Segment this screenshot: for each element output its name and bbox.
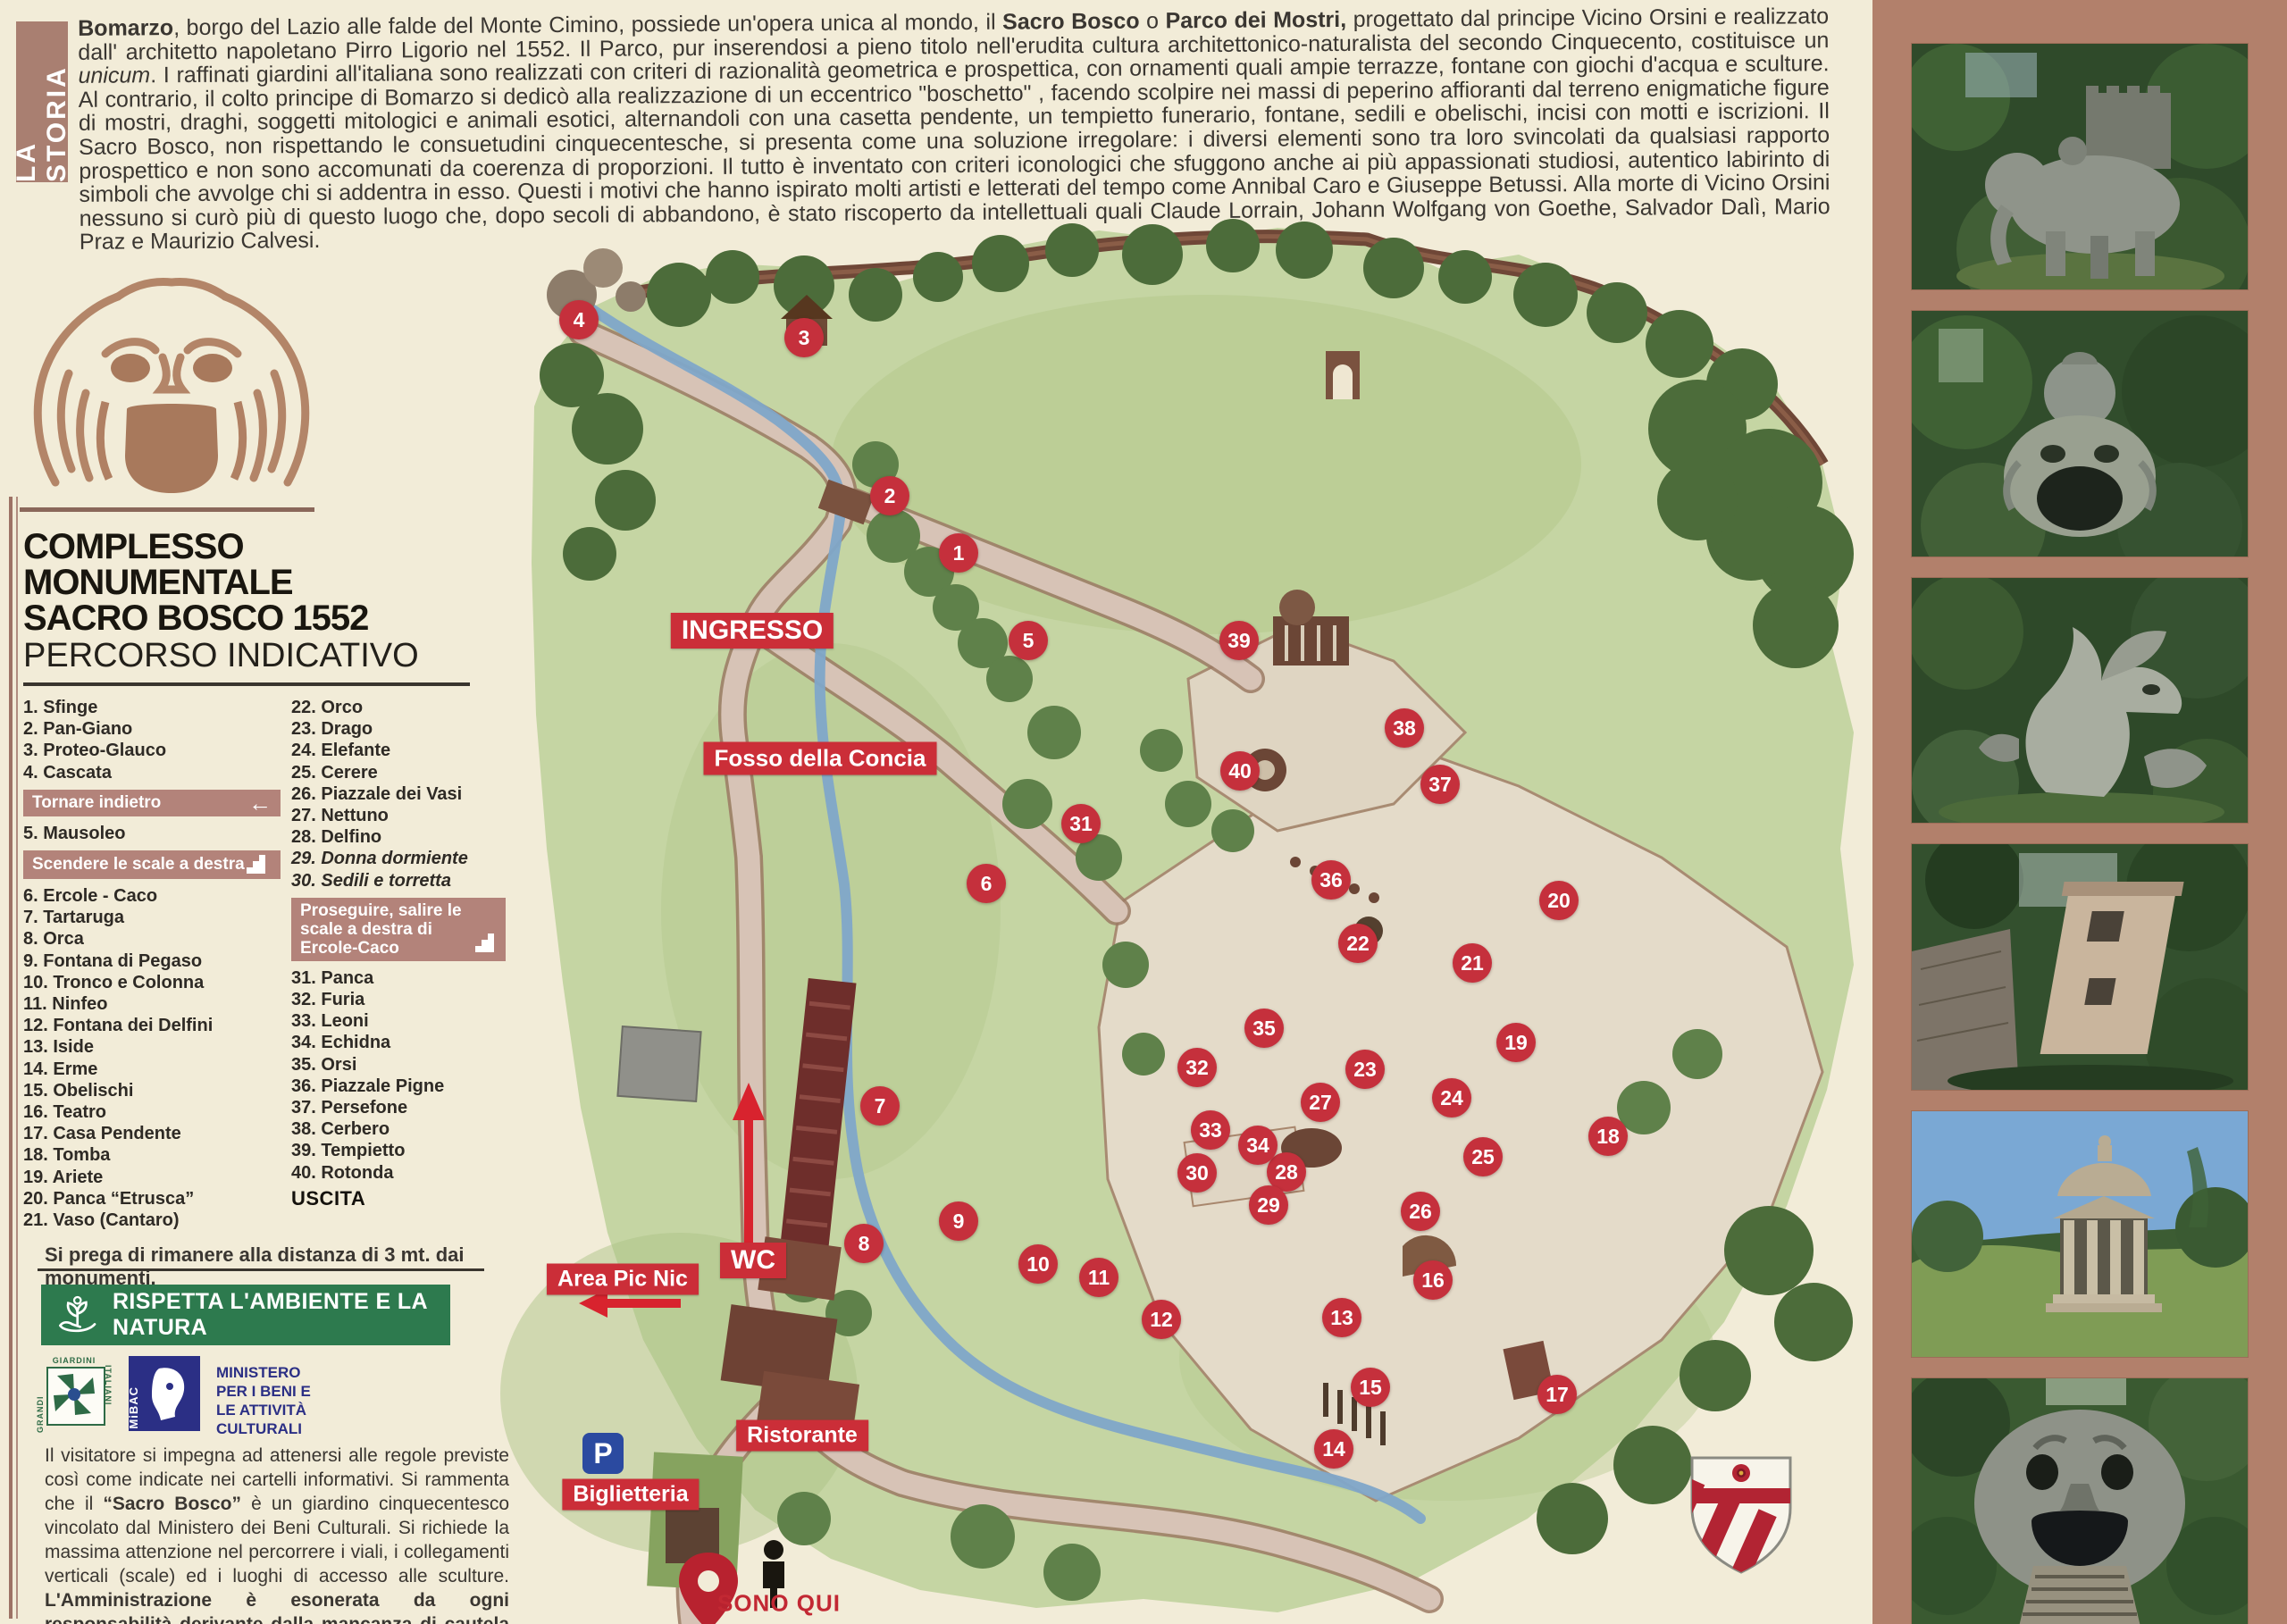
- wall-gate-icon: [1326, 351, 1360, 399]
- map-marker-22: 22: [1338, 924, 1378, 963]
- map-marker-4: 4: [559, 300, 599, 339]
- map-marker-27: 27: [1301, 1083, 1340, 1122]
- photo-drago: [1912, 578, 2248, 824]
- map-marker-10: 10: [1018, 1244, 1058, 1284]
- map-marker-35: 35: [1244, 1009, 1284, 1048]
- map-label-biglietteria: Biglietteria: [562, 1479, 699, 1511]
- map-marker-39: 39: [1219, 621, 1259, 660]
- parking-icon: P: [582, 1433, 624, 1474]
- photo-elefante: [1912, 44, 2248, 289]
- map-marker-8: 8: [844, 1224, 884, 1263]
- map-label-sono-qui: SONO QUI: [717, 1590, 841, 1618]
- map-marker-3: 3: [784, 318, 824, 357]
- map-marker-26: 26: [1401, 1192, 1440, 1231]
- map-marker-32: 32: [1177, 1048, 1217, 1087]
- map-marker-38: 38: [1385, 708, 1424, 748]
- map-marker-23: 23: [1345, 1050, 1385, 1089]
- photo-proteo-glauco: [1912, 311, 2248, 557]
- map-marker-1: 1: [939, 533, 978, 573]
- map-label-wc: WC: [720, 1243, 786, 1278]
- photo-column: [1872, 0, 2287, 1624]
- map-marker-16: 16: [1413, 1260, 1453, 1300]
- map-marker-9: 9: [939, 1201, 978, 1241]
- map-marker-34: 34: [1238, 1126, 1278, 1165]
- map-label-ristorante: Ristorante: [736, 1420, 868, 1452]
- map-marker-13: 13: [1322, 1298, 1361, 1337]
- map-marker-37: 37: [1420, 765, 1460, 804]
- map-marker-2: 2: [870, 476, 909, 515]
- map-marker-19: 19: [1496, 1023, 1536, 1062]
- map-marker-21: 21: [1453, 943, 1492, 983]
- map-marker-18: 18: [1588, 1117, 1628, 1156]
- photo-orco: [1912, 1378, 2248, 1624]
- brochure-page: LA STORIA Bomarzo, borgo del Lazio alle …: [0, 0, 2287, 1624]
- map-label-fosso-della-concia: Fosso della Concia: [704, 742, 937, 775]
- map-marker-29: 29: [1249, 1185, 1288, 1225]
- map-marker-14: 14: [1314, 1429, 1353, 1469]
- map-marker-33: 33: [1191, 1110, 1230, 1150]
- gray-block: [617, 1026, 700, 1101]
- map-marker-36: 36: [1311, 860, 1351, 900]
- map-marker-17: 17: [1537, 1375, 1577, 1414]
- map-marker-40: 40: [1220, 751, 1260, 791]
- map-label-area-pic-nic: Area Pic Nic: [547, 1264, 699, 1295]
- map-label-ingresso: INGRESSO: [671, 613, 834, 649]
- map-marker-11: 11: [1079, 1258, 1118, 1297]
- map-marker-5: 5: [1009, 621, 1048, 660]
- map-marker-24: 24: [1432, 1078, 1471, 1118]
- map-marker-31: 31: [1061, 804, 1101, 843]
- map-marker-30: 30: [1177, 1153, 1217, 1193]
- map-marker-7: 7: [860, 1086, 900, 1126]
- map-marker-12: 12: [1142, 1300, 1181, 1339]
- photo-tempietto: [1912, 1111, 2248, 1357]
- map-marker-6: 6: [967, 864, 1006, 903]
- photo-casa-pendente: [1912, 844, 2248, 1090]
- map-marker-25: 25: [1463, 1137, 1503, 1176]
- map-marker-15: 15: [1351, 1368, 1390, 1407]
- map-marker-20: 20: [1539, 881, 1579, 920]
